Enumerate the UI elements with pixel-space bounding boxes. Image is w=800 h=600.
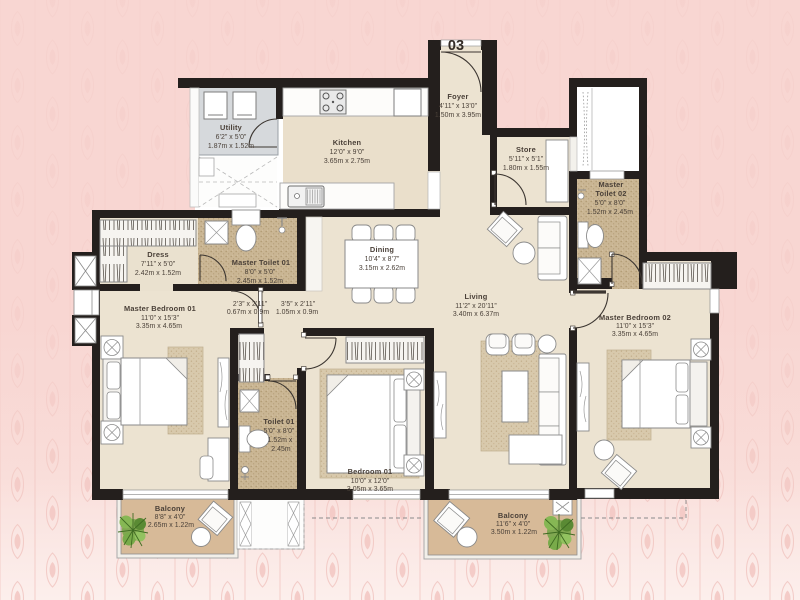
svg-text:1.52m x 2.45m: 1.52m x 2.45m	[587, 209, 633, 216]
svg-text:7’11” x 5’0”: 7’11” x 5’0”	[141, 261, 176, 268]
svg-text:1.05m x 0.9m: 1.05m x 0.9m	[276, 309, 319, 316]
svg-text:Dining: Dining	[370, 245, 394, 254]
svg-text:5’0” x 8’0”: 5’0” x 8’0”	[595, 200, 626, 207]
svg-text:Living: Living	[465, 292, 488, 301]
svg-text:Balcony: Balcony	[498, 511, 529, 520]
svg-text:2.45m x 1.52m: 2.45m x 1.52m	[237, 278, 283, 285]
svg-text:6’2” x 5’0”: 6’2” x 5’0”	[216, 134, 247, 141]
svg-text:Master Bedroom 01: Master Bedroom 01	[124, 304, 196, 313]
svg-text:Master Toilet 01: Master Toilet 01	[232, 258, 291, 267]
svg-text:11’0” x 15’3”: 11’0” x 15’3”	[616, 323, 655, 330]
svg-text:Bedroom 01: Bedroom 01	[348, 467, 393, 476]
svg-text:10’4” x 8’7”: 10’4” x 8’7”	[365, 256, 400, 263]
svg-text:2.45m: 2.45m	[271, 446, 291, 453]
svg-text:0.67m x 0.9m: 0.67m x 0.9m	[227, 309, 270, 316]
svg-text:4’11” x 13’0”: 4’11” x 13’0”	[439, 103, 478, 110]
svg-text:Balcony: Balcony	[155, 504, 186, 513]
svg-text:5’0” x 8’0”: 5’0” x 8’0”	[264, 428, 295, 435]
svg-text:10’0” x 12’0”: 10’0” x 12’0”	[351, 478, 390, 485]
svg-text:11’0” x 15’3”: 11’0” x 15’3”	[141, 315, 180, 322]
svg-text:3.40m x 6.37m: 3.40m x 6.37m	[453, 311, 499, 318]
svg-text:Toilet 01: Toilet 01	[263, 417, 294, 426]
svg-text:2.42m x 1.52m: 2.42m x 1.52m	[135, 270, 181, 277]
svg-text:12’0” x 9’0”: 12’0” x 9’0”	[330, 149, 365, 156]
svg-text:Master: Master	[598, 180, 623, 189]
svg-text:8’0” x 5’0”: 8’0” x 5’0”	[245, 269, 276, 276]
svg-text:Store: Store	[516, 145, 536, 154]
svg-text:1.52m x: 1.52m x	[268, 437, 293, 444]
svg-text:11’2” x 20’11”: 11’2” x 20’11”	[455, 303, 497, 310]
svg-text:1.87m x 1.52m: 1.87m x 1.52m	[208, 143, 254, 150]
svg-text:Utility: Utility	[220, 123, 243, 132]
svg-text:2’3” x 2’11”: 2’3” x 2’11”	[233, 301, 268, 308]
svg-text:Dress: Dress	[147, 250, 169, 259]
svg-text:Kitchen: Kitchen	[333, 138, 362, 147]
svg-text:5’11” x 5’1”: 5’11” x 5’1”	[509, 156, 544, 163]
svg-text:Master Bedroom 02: Master Bedroom 02	[599, 313, 671, 322]
svg-text:3.35m x 4.65m: 3.35m x 4.65m	[612, 331, 658, 338]
svg-text:Foyer: Foyer	[447, 92, 468, 101]
svg-text:11’6” x 4’0”: 11’6” x 4’0”	[496, 521, 531, 528]
svg-text:3.65m x 2.75m: 3.65m x 2.75m	[324, 158, 370, 165]
svg-text:1.80m x 1.55m: 1.80m x 1.55m	[503, 165, 549, 172]
svg-text:3’5” x 2’11”: 3’5” x 2’11”	[281, 301, 316, 308]
svg-text:2.65m x 1.22m: 2.65m x 1.22m	[148, 522, 194, 529]
svg-text:03: 03	[448, 38, 464, 54]
svg-text:3.15m x 2.62m: 3.15m x 2.62m	[359, 265, 405, 272]
svg-text:3.35m x 4.65m: 3.35m x 4.65m	[136, 323, 182, 330]
svg-text:Toilet 02: Toilet 02	[595, 189, 626, 198]
svg-text:3.50m x 1.22m: 3.50m x 1.22m	[491, 529, 537, 536]
svg-text:1.50m x 3.95m: 1.50m x 3.95m	[435, 112, 481, 119]
svg-text:3.05m x 3.65m: 3.05m x 3.65m	[347, 486, 393, 493]
svg-text:8’8” x 4’0”: 8’8” x 4’0”	[155, 514, 186, 521]
